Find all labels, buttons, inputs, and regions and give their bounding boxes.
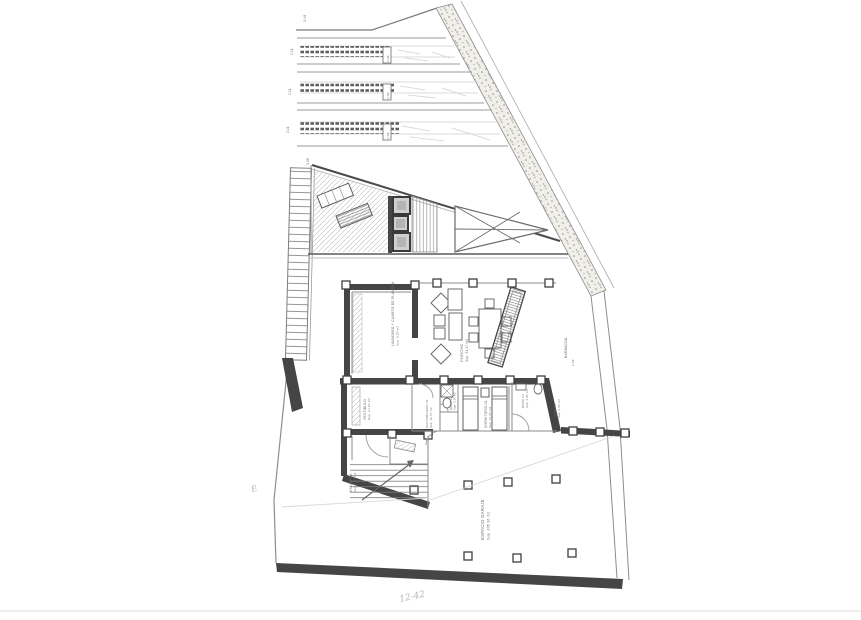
strip3-box-dim: 3.08 bbox=[386, 132, 390, 139]
svg-text:BAÑO 02: BAÑO 02 bbox=[448, 397, 453, 410]
bed bbox=[463, 387, 478, 430]
strip1-box-dim: 3.08 bbox=[386, 55, 390, 62]
terrace-bottom-dim: 3.06 bbox=[306, 158, 310, 165]
vestibule-closet bbox=[352, 387, 360, 425]
svg-text:Sup. 10.57 m2: Sup. 10.57 m2 bbox=[429, 407, 433, 428]
strip3-dim: 2.11 bbox=[286, 126, 290, 133]
svg-text:BARBACOA: BARBACOA bbox=[564, 337, 568, 358]
svg-text:ESPACIO GARAJE: ESPACIO GARAJE bbox=[480, 499, 485, 540]
strip2-dim: 2.11 bbox=[288, 88, 292, 95]
armchair bbox=[434, 315, 445, 326]
laundry-counter bbox=[353, 294, 362, 372]
toilet bbox=[534, 384, 542, 394]
svg-text:Sup. 9.50 m2: Sup. 9.50 m2 bbox=[395, 326, 399, 346]
floor-plan-drawing: 3.06 2.11 2.11 2.11 3.08 3.08 3.08 3.06 … bbox=[0, 0, 861, 620]
room-label-vestibulo: VESTIBULO Sup. 13.15 m2 bbox=[363, 398, 371, 420]
svg-text:LAVADERO Y CUARTO DE PLANCHA: LAVADERO Y CUARTO DE PLANCHA bbox=[391, 281, 395, 346]
nightstand bbox=[481, 388, 489, 397]
armchair bbox=[434, 328, 445, 339]
deck-boards-strip bbox=[412, 196, 437, 252]
room-label-barbacoa: BARBACOA bbox=[564, 337, 568, 358]
strip1-dim: 2.11 bbox=[290, 48, 294, 55]
staircase bbox=[350, 460, 428, 502]
svg-text:Sup. 4.50 m2: Sup. 4.50 m2 bbox=[557, 399, 561, 418]
svg-text:Sup. 4.55 m2: Sup. 4.55 m2 bbox=[353, 472, 357, 492]
strip2-box-dim: 3.08 bbox=[386, 92, 390, 99]
svg-text:Sup. 3.30 m2: Sup. 3.30 m2 bbox=[452, 392, 456, 410]
svg-text:Sup. 4.85 m2: Sup. 4.85 m2 bbox=[525, 389, 529, 408]
stair-treads bbox=[350, 460, 428, 502]
svg-text:PORCHE: PORCHE bbox=[459, 344, 464, 362]
sofa bbox=[449, 313, 462, 340]
svg-text:Sup. 13.15 m2: Sup. 13.15 m2 bbox=[367, 398, 371, 420]
svg-text:Sup. 205.36 m2: Sup. 205.36 m2 bbox=[486, 512, 490, 540]
terrace-top-dim: 3.06 bbox=[303, 15, 307, 22]
loveseat bbox=[448, 289, 462, 310]
barbacoa-dim: 2.08 bbox=[571, 359, 575, 366]
scanned-plan-page: 3.06 2.11 2.11 2.11 3.08 3.08 3.08 3.06 … bbox=[0, 0, 861, 620]
chair bbox=[485, 299, 494, 308]
svg-text:Sup. 13.05 m2: Sup. 13.05 m2 bbox=[488, 406, 492, 428]
bed bbox=[492, 387, 507, 430]
chair bbox=[469, 333, 478, 342]
svg-text:Sup. 31.17 m2: Sup. 31.17 m2 bbox=[465, 339, 469, 362]
svg-text:2.08: 2.08 bbox=[571, 359, 575, 366]
room-label-escalera: ESCALERA Sup. 4.55 m2 bbox=[349, 472, 357, 492]
chair bbox=[469, 317, 478, 326]
skylight-squares bbox=[388, 196, 410, 253]
